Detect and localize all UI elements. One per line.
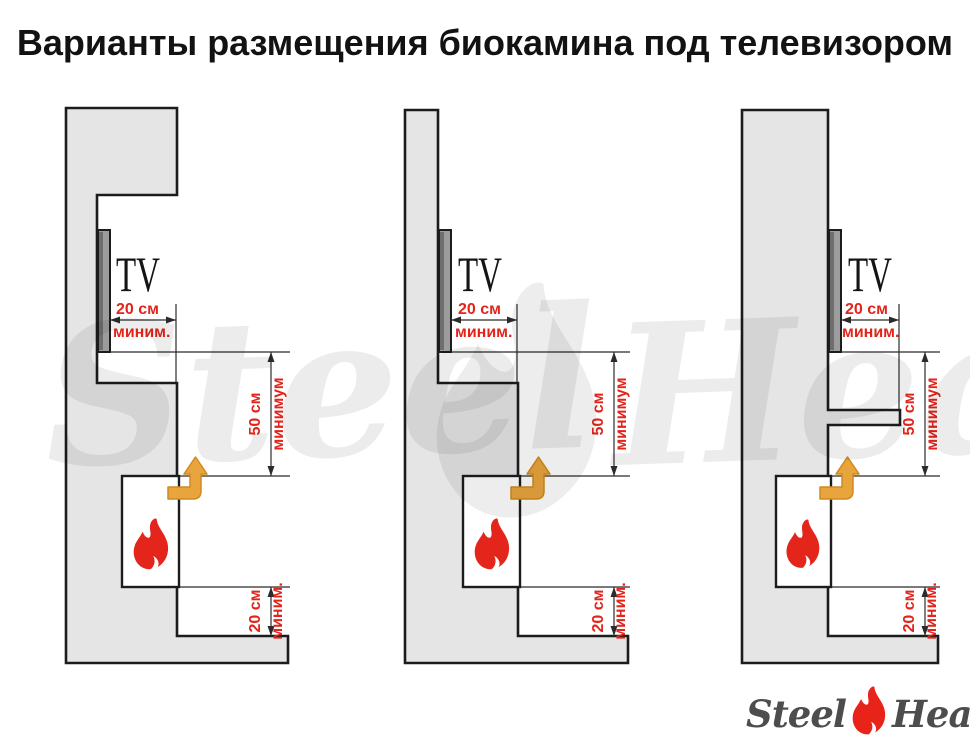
steelheat-logo: Steel Heat xyxy=(746,684,970,744)
dimension-value: 20 см xyxy=(116,301,159,318)
tv-label: TV xyxy=(458,246,502,302)
dimension-qualifier: миним. xyxy=(842,324,899,341)
diagram-variant-1: TV 20 см миним. 50 см xyxy=(66,108,290,663)
dimension-top-gap: 20 см миним. xyxy=(841,301,899,341)
dimension-value: 20 см xyxy=(247,590,264,633)
dimension-top-gap: 20 см миним. xyxy=(110,301,176,341)
infographic-canvas: Варианты размещения биокамина под телеви… xyxy=(0,0,970,749)
wall-outline xyxy=(742,110,938,663)
dimension-qualifier: миним. xyxy=(269,582,286,639)
dimension-bottom-gap: 20 см миним. xyxy=(590,582,629,639)
logo-steel-text: Steel xyxy=(746,692,846,736)
tv-label: TV xyxy=(848,246,892,302)
tv-mount-bracket xyxy=(99,232,103,350)
dimension-value: 20 см xyxy=(845,301,888,318)
diagram-variant-3: TV 20 см миним. 50 см минимум xyxy=(742,110,941,663)
dimension-qualifier: минимум xyxy=(924,377,941,450)
dimension-side-gap: 50 см минимум xyxy=(901,352,941,476)
logo-flame-icon xyxy=(848,686,890,738)
dimension-qualifier: миним. xyxy=(113,324,170,341)
dimension-qualifier: минимум xyxy=(613,377,630,450)
tv-label: TV xyxy=(116,246,160,302)
dimension-side-gap: 50 см минимум xyxy=(590,352,630,476)
dimension-qualifier: минимум xyxy=(270,377,287,450)
dimension-qualifier: миним. xyxy=(455,324,512,341)
dimension-value: 20 см xyxy=(590,590,607,633)
page-title: Варианты размещения биокамина под телеви… xyxy=(0,22,970,64)
dimension-side-gap: 50 см минимум xyxy=(247,352,287,476)
dimension-value: 50 см xyxy=(901,393,918,436)
dimension-qualifier: миним. xyxy=(612,582,629,639)
tv-mount-bracket xyxy=(440,232,444,350)
dimension-bottom-gap: 20 см миним. xyxy=(901,582,940,639)
dimension-value: 20 см xyxy=(901,590,918,633)
logo-heat-text: Heat xyxy=(892,692,970,736)
dimension-value: 50 см xyxy=(247,393,264,436)
dimension-qualifier: миним. xyxy=(923,582,940,639)
dimension-top-gap: 20 см миним. xyxy=(451,301,517,341)
diagram-variant-2: TV 20 см миним. 50 см минимум xyxy=(405,110,630,663)
diagram-details-layer: TV 20 см миним. 50 см xyxy=(0,0,970,749)
dimension-bottom-gap: 20 см миним. xyxy=(247,582,286,639)
dimension-value: 20 см xyxy=(458,301,501,318)
tv-mount-bracket xyxy=(830,232,834,350)
dimension-value: 50 см xyxy=(590,393,607,436)
